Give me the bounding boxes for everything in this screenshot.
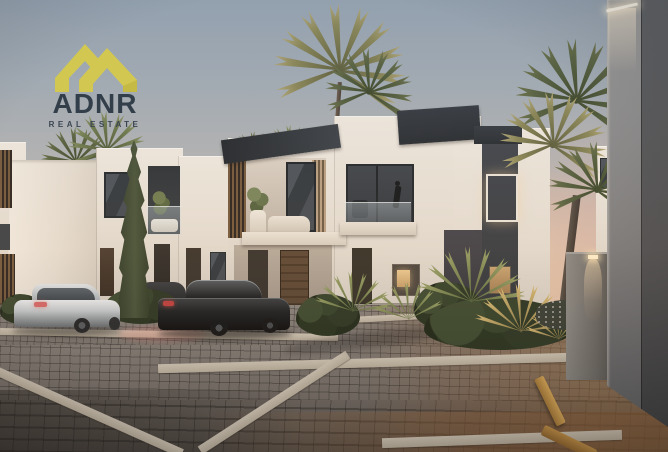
brand-name: ADNR [38,88,152,120]
foreground-building-right-face [641,0,668,452]
townhouse-3-door [352,248,372,304]
hedge-center [296,294,360,336]
townhouse-3-balcony-slab [340,222,416,235]
balcony-planter-pot [250,210,266,234]
lit-window-large [486,174,518,222]
townhouse-2-slat-panel [228,154,246,238]
foreground-building [607,0,668,452]
white-sedan-wheel [74,318,90,333]
roof-chevrons-icon [45,30,145,92]
balcony-lounge-chair [268,216,310,233]
black-sedan-wheel-rear [210,320,228,336]
glass-railing-1 [147,206,181,235]
white-sedan [14,284,120,336]
black-sedan-taillight [163,301,174,306]
led-glow-streak [608,8,636,72]
black-sedan-wheel-front [262,318,278,333]
white-sedan-taillight [34,302,47,307]
balcony-rail-far-left [0,224,10,250]
slat-panel-upper-left [0,150,12,208]
black-sedan [158,280,290,338]
brand-logo: ADNR REAL ESTATE [38,28,152,134]
brand-tagline: REAL ESTATE [38,120,152,129]
white-sedan-body [14,300,120,327]
utility-box-light [397,270,410,287]
townhouse-3-roof-band [397,105,481,145]
townhouse-2-balcony-slab [242,232,346,245]
person-silhouette-head [395,181,400,186]
wall-lamp-glow [584,259,602,323]
white-sedan-shadow [12,326,122,336]
property-rendering: ADNR REAL ESTATE [0,0,668,452]
white-sedan-wheel-front [109,317,120,330]
